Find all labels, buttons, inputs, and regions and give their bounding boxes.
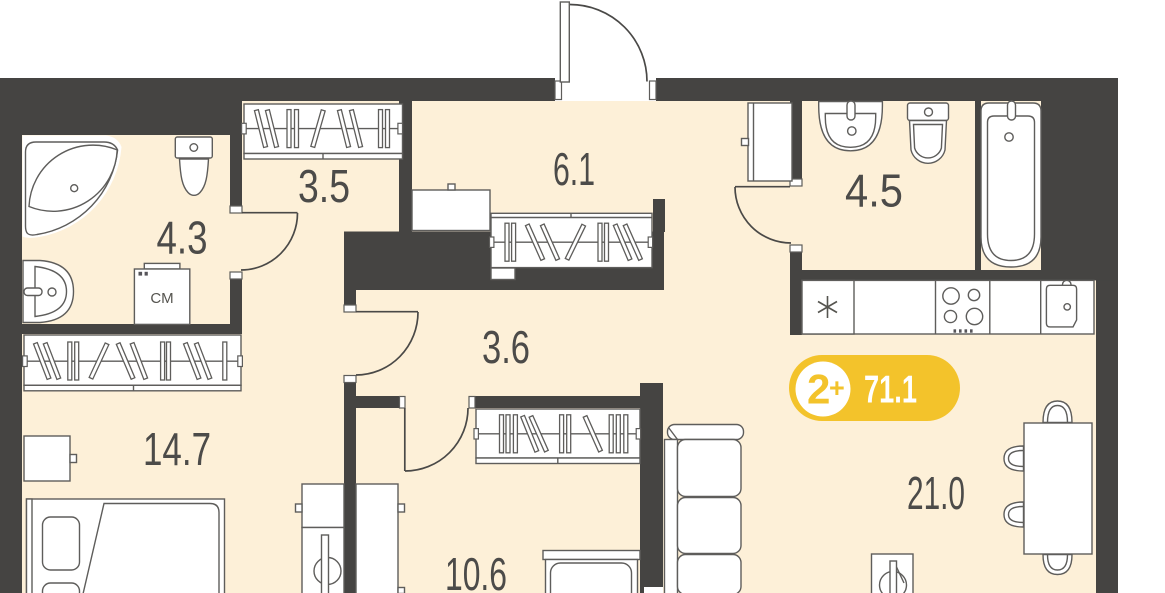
svg-text:4.5: 4.5 (845, 165, 903, 217)
svg-text:71.1: 71.1 (864, 369, 917, 412)
svg-text:4.3: 4.3 (157, 212, 208, 264)
svg-text:10.6: 10.6 (445, 548, 507, 593)
svg-text:3.5: 3.5 (298, 160, 350, 212)
svg-text:21.0: 21.0 (907, 467, 965, 519)
svg-text:СМ: СМ (150, 290, 173, 307)
svg-text:14.7: 14.7 (143, 423, 211, 475)
svg-text:+: + (829, 373, 845, 403)
svg-text:3.6: 3.6 (482, 321, 530, 373)
svg-text:2: 2 (807, 366, 830, 413)
svg-text:6.1: 6.1 (553, 143, 595, 195)
